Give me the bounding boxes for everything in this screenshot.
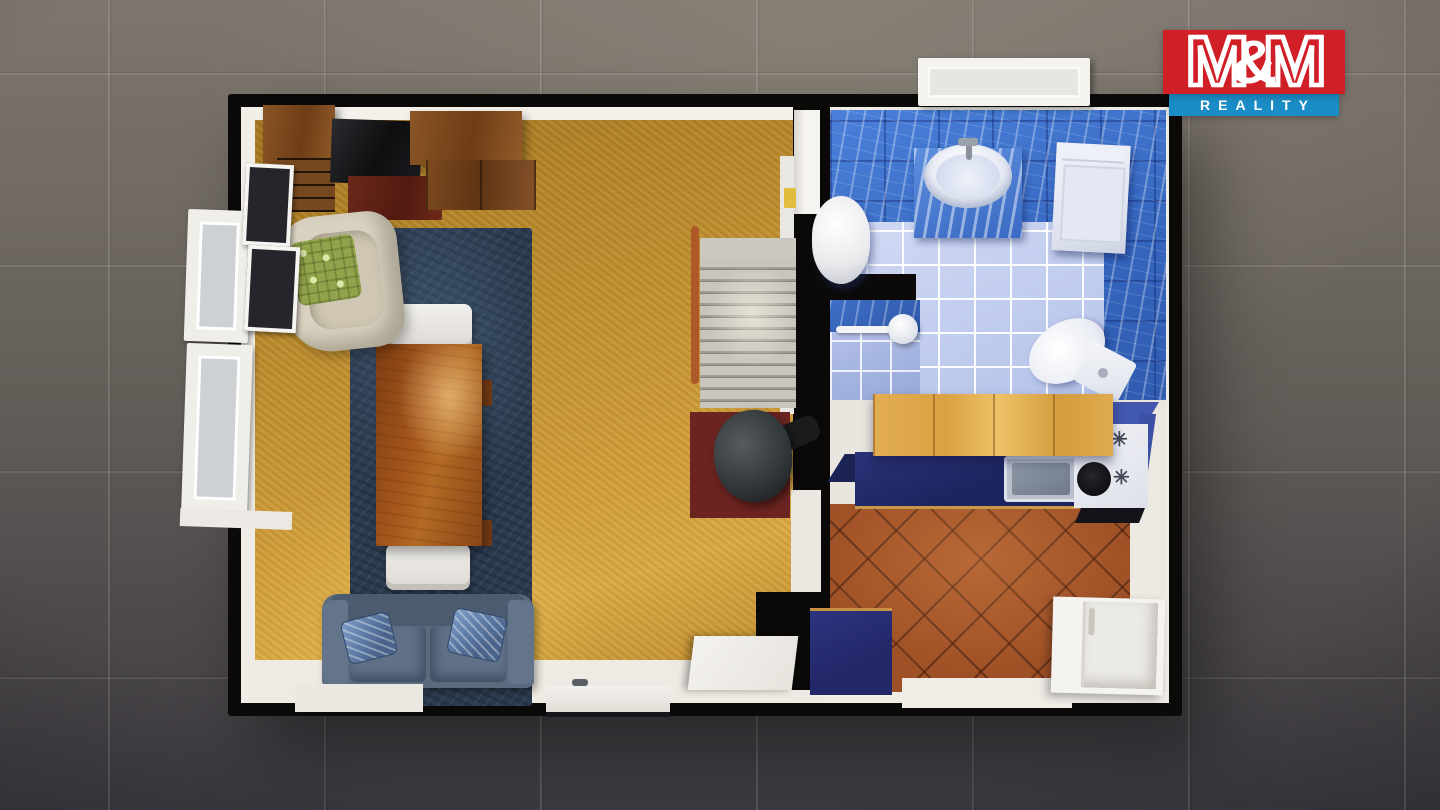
hall-open-door [688, 636, 799, 690]
water-heater [812, 196, 870, 284]
bathroom-window [918, 58, 1090, 106]
door-handle [572, 679, 588, 686]
washing-machine-panel [1062, 146, 1125, 163]
side-chair [482, 380, 492, 406]
toilet-flush-button [1098, 368, 1108, 378]
wall-cabinet-middle [410, 111, 522, 165]
bathroom-window-pane [928, 67, 1080, 97]
washing-machine [1051, 142, 1131, 254]
window-pane [196, 221, 240, 330]
dining-chair-bottom [386, 544, 470, 590]
green-pillow [289, 233, 362, 306]
wall-cabinet-left [263, 105, 335, 163]
wardrobe [426, 160, 536, 210]
shower-head [888, 314, 918, 344]
window-glass-lower [244, 245, 300, 334]
faucet-handle [958, 138, 978, 146]
staircase [700, 258, 796, 408]
faucet [966, 144, 972, 160]
oven-handle [1075, 508, 1145, 523]
kitchen-sink-basin [1012, 463, 1070, 495]
shower-partition-wall [804, 274, 916, 300]
window-sill [180, 508, 293, 530]
gas-burner-icon: ✳ [1111, 430, 1128, 450]
upper-cabinets [873, 394, 1113, 456]
logo-red-block: M & M [1163, 30, 1345, 94]
bathroom-door [794, 110, 820, 214]
kitchen-door-sill [902, 678, 1072, 708]
logo-reality-bar: REALITY [1169, 94, 1339, 116]
logo-ampersand: & [1231, 34, 1277, 89]
living-room-door [546, 686, 670, 712]
burner-plate [1077, 462, 1111, 496]
sofa-armrest-right [508, 600, 534, 684]
window-left-lower [181, 343, 253, 513]
side-chair [482, 520, 492, 546]
washing-machine-lid [1060, 165, 1126, 244]
bottom-window-sill [295, 684, 423, 712]
blue-cabinet [810, 608, 892, 695]
stair-landing [700, 238, 796, 260]
towel [784, 188, 796, 208]
window-pane [194, 355, 241, 500]
stair-handrail [691, 226, 699, 384]
gas-burner-icon: ✳ [1113, 468, 1130, 488]
sofa [322, 594, 534, 688]
mm-reality-logo: M & M REALITY [1163, 30, 1345, 116]
refrigerator-handle [1088, 607, 1095, 635]
floorplan: ✳ ✳ [228, 94, 1182, 716]
kitchen: ✳ ✳ [830, 400, 1166, 692]
window-glass-upper [242, 163, 294, 247]
refrigerator [1051, 597, 1165, 696]
bathroom [830, 110, 1166, 402]
washbasin-bowl [936, 154, 1000, 198]
dining-table [376, 344, 482, 546]
